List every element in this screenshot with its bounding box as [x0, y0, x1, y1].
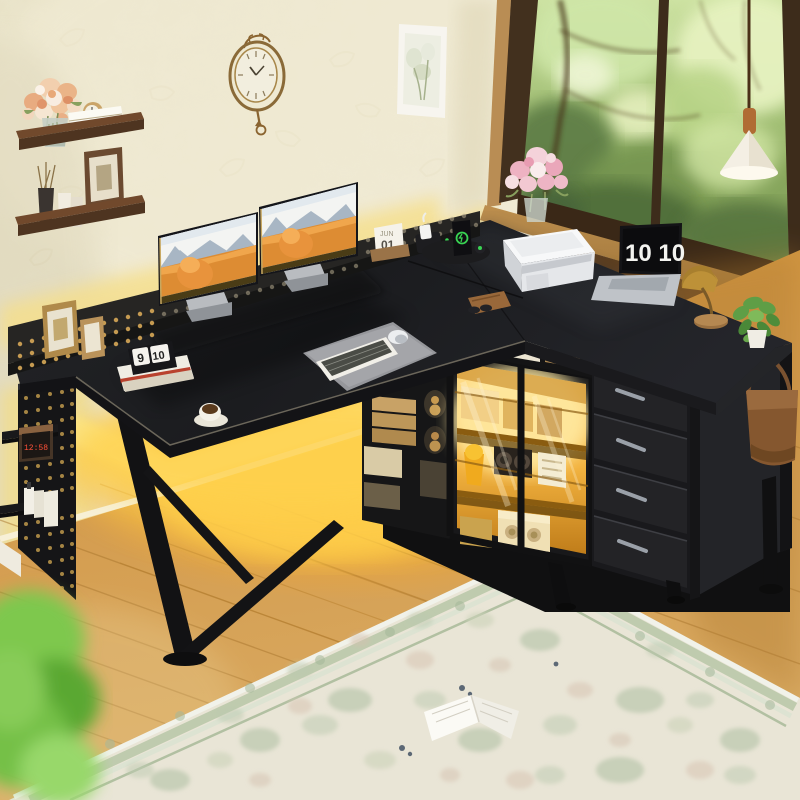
svg-text:10: 10 — [152, 349, 166, 363]
svg-text:JUN: JUN — [380, 231, 394, 238]
svg-text:12:58: 12:58 — [24, 444, 48, 453]
svg-text:10 10: 10 10 — [625, 240, 685, 267]
